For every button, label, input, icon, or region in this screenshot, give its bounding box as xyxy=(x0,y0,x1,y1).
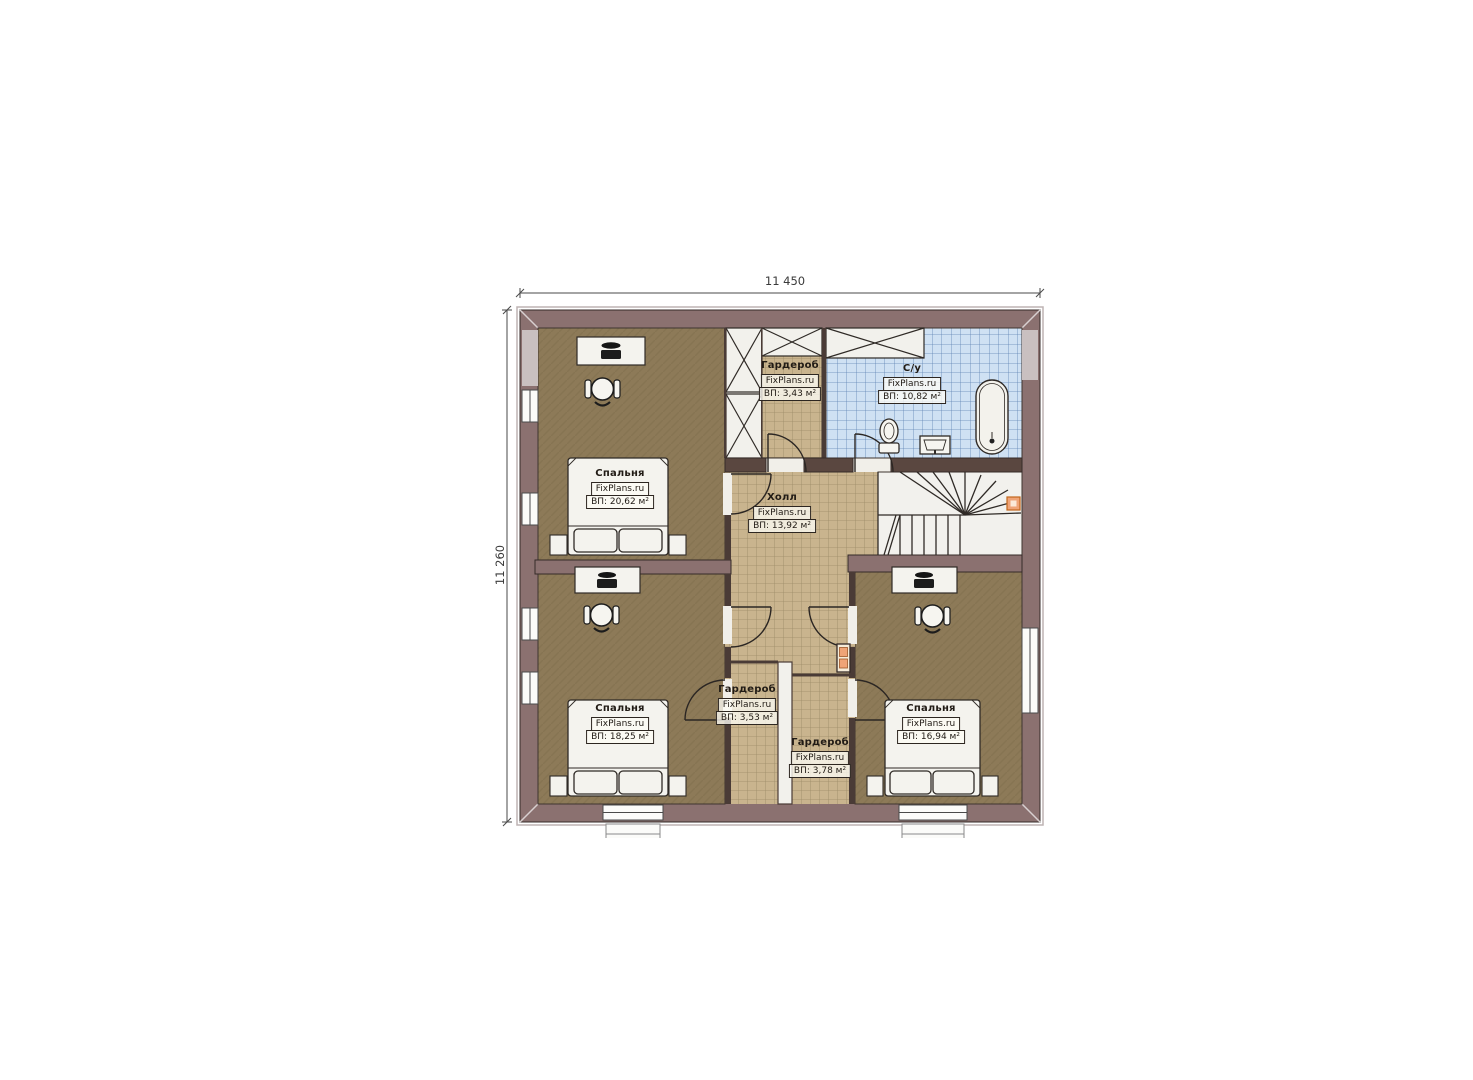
window-sill xyxy=(902,824,964,838)
desk-bedroom-tl xyxy=(577,337,645,365)
wall-strip-right xyxy=(761,328,763,458)
laptop-icon xyxy=(597,572,617,588)
nightstand xyxy=(669,535,686,555)
window xyxy=(522,493,538,525)
laptop-icon xyxy=(914,572,934,588)
dimension-height-label: 11 260 xyxy=(493,545,507,585)
laptop-icon xyxy=(601,342,621,359)
desk-bedroom-br xyxy=(892,567,957,593)
nightstand xyxy=(867,776,883,796)
nightstand xyxy=(550,535,567,555)
room-hall-floor xyxy=(725,472,878,555)
desk-bedroom-bl xyxy=(575,567,640,593)
gable-wall-band xyxy=(522,330,538,386)
floor-plan-drawing xyxy=(495,268,1055,838)
floor-plan-canvas: 11 450 11 260 Спальня FixPlans.ru ВП: 20… xyxy=(0,0,1473,1080)
dimension-width-label: 11 450 xyxy=(765,274,805,288)
window xyxy=(1022,628,1038,713)
window xyxy=(522,390,538,422)
window xyxy=(522,672,538,704)
nightstand xyxy=(982,776,998,796)
bed-bedroom-tl xyxy=(568,458,668,555)
sink-icon xyxy=(920,436,950,454)
flue-block xyxy=(837,644,850,672)
window-sill xyxy=(606,824,660,838)
nightstand xyxy=(550,776,567,796)
bed-bedroom-bl xyxy=(568,700,668,796)
nightstand xyxy=(669,776,686,796)
closet-bathroom xyxy=(826,328,924,358)
window xyxy=(522,608,538,640)
bed-bedroom-br xyxy=(885,700,980,796)
toilet-icon xyxy=(879,419,899,453)
gable-wall-band xyxy=(1022,330,1038,380)
wall-strip-left xyxy=(724,328,727,458)
wall-vent-marker xyxy=(1007,497,1020,510)
closet-wardrobe-top xyxy=(762,328,822,356)
wall-corridor-left xyxy=(725,514,731,804)
wall-wardrobe-divider xyxy=(778,662,792,804)
wall-bathroom-left xyxy=(822,328,826,458)
window xyxy=(603,805,663,820)
bathtub-icon xyxy=(976,380,1008,454)
window xyxy=(899,805,967,820)
